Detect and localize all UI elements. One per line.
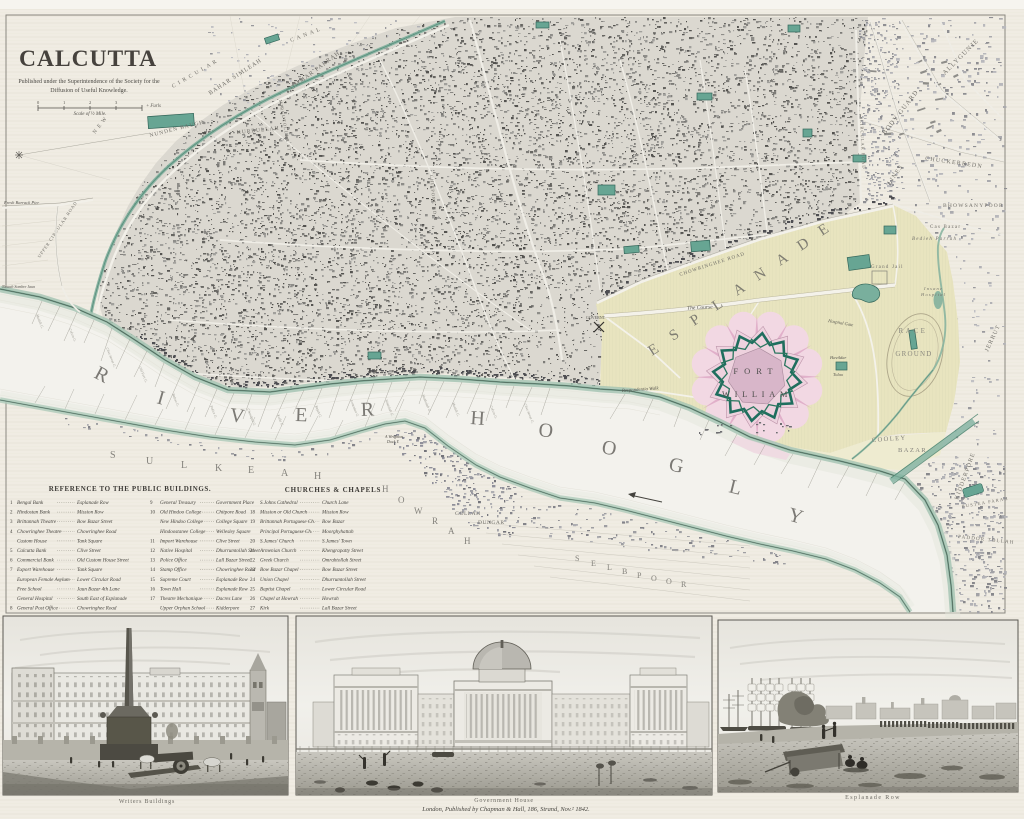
svg-text:15: 15 [150,578,156,583]
svg-text:Grand Jail: Grand Jail [871,265,904,270]
svg-text:Calcutta Bank: Calcutta Bank [17,548,47,554]
svg-text:O: O [398,495,405,505]
svg-text:Lower Circular Road: Lower Circular Road [321,586,366,592]
svg-text:Dhurrumtollah Street: Dhurrumtollah Street [321,577,366,583]
svg-text:Hospital: Hospital [920,292,946,297]
svg-text:BAZAR: BAZAR [898,447,927,454]
svg-text:L: L [181,460,187,471]
svg-text:London, Published by Chapman &: London, Published by Chapman & Hall, 186… [421,806,590,813]
svg-text:Published under the Superinten: Published under the Superintendence of t… [18,78,160,85]
svg-text:24: 24 [250,578,256,583]
svg-text:Brittannah Theatre: Brittannah Theatre [17,519,57,525]
svg-text:Bow Bazar Street: Bow Bazar Street [77,519,113,525]
svg-text:Tank Square: Tank Square [77,567,103,573]
svg-text:Union Chapel: Union Chapel [260,577,289,583]
svg-text:W: W [414,506,423,516]
svg-text:O: O [651,574,657,583]
svg-text:13: 13 [150,559,156,564]
svg-text:Bow Bazar Chapel: Bow Bazar Chapel [260,567,299,573]
svg-text:Old Custom House Street: Old Custom House Street [77,558,129,564]
svg-text:Upper Orphan School: Upper Orphan School [160,606,206,612]
svg-text:Chowringhee Theatre: Chowringhee Theatre [17,529,62,535]
svg-text:South East of Esplanade: South East of Esplanade [77,595,128,602]
svg-text:S.Johns Cathedral: S.Johns Cathedral [260,500,298,506]
svg-text:Lower Circular Road: Lower Circular Road [76,577,121,583]
svg-text:A: A [281,468,289,479]
svg-text:Chapel at Howrah: Chapel at Howrah [260,596,298,602]
svg-text:S.James' Town: S.James' Town [322,538,352,544]
svg-text:Esplanade Row: Esplanade Row [215,586,248,592]
svg-text:H: H [470,407,486,430]
svg-text:Mission Row: Mission Row [321,510,349,516]
svg-text:Clive Street: Clive Street [77,548,101,554]
svg-text:27: 27 [250,607,256,612]
svg-text:Cas Bazar: Cas Bazar [930,225,961,230]
svg-text:B: B [622,567,627,576]
svg-text:Chowringhee Road: Chowringhee Road [77,529,117,535]
svg-text:H: H [382,484,389,494]
svg-text:22: 22 [250,559,256,564]
svg-text:Dacres Lane: Dacres Lane [215,596,243,602]
svg-text:25: 25 [250,587,256,592]
svg-text:K: K [215,463,223,474]
svg-text:O: O [666,577,672,586]
svg-text:Hindostan Bank: Hindostan Bank [16,510,51,516]
svg-text:+ Furls: + Furls [146,104,161,109]
svg-text:P: P [637,571,642,580]
svg-text:14: 14 [150,568,156,573]
svg-text:S.James' Church: S.James' Church [260,538,294,544]
svg-text:11: 11 [150,539,155,544]
svg-text:S: S [575,554,579,563]
svg-text:Police Office: Police Office [159,557,187,564]
svg-text:WILLIAM: WILLIAM [722,389,792,399]
svg-text:Church Lane: Church Lane [322,500,349,506]
svg-text:Bow Bazar: Bow Bazar [322,519,345,525]
svg-text:College Square: College Square [216,519,248,525]
svg-text:Fresh Barrack Pier: Fresh Barrack Pier [3,200,39,205]
svg-text:12: 12 [150,549,156,554]
svg-text:A: A [448,526,455,536]
svg-text:2: 2 [89,100,91,105]
svg-text:Greek Church: Greek Church [260,558,289,564]
svg-text:New Hindoo College: New Hindoo College [159,519,203,525]
svg-text:E: E [248,465,254,476]
svg-text:Howrah: Howrah [321,596,339,602]
svg-text:Government House: Government House [474,798,534,804]
svg-text:Export Warehouse: Export Warehouse [16,567,55,573]
svg-text:Armenian Church: Armenian Church [259,548,297,554]
svg-text:Mission or Old Church: Mission or Old Church [259,510,308,516]
svg-text:Writers Buildings: Writers Buildings [119,799,175,805]
svg-text:Import Warehouse: Import Warehouse [159,538,198,544]
svg-text:16: 16 [150,587,156,592]
svg-text:U: U [146,456,154,467]
svg-text:Bedieh Parrah: Bedieh Parrah [912,237,957,242]
svg-text:10: 10 [150,511,156,516]
svg-text:GROUND: GROUND [895,350,932,358]
svg-text:Omrahtollah Street: Omrahtollah Street [322,558,362,564]
svg-text:R: R [360,399,375,421]
svg-text:CHURCHES & CHAPELS: CHURCHES & CHAPELS [285,486,381,494]
svg-text:Brittannah Portuguese Ch.: Brittannah Portuguese Ch. [260,519,315,525]
svg-text:E: E [295,404,308,426]
svg-text:BHOWSANYPOOR: BHOWSANYPOOR [943,203,1004,209]
svg-text:Commercial Bank: Commercial Bank [17,558,54,564]
svg-text:Moorghyhattah: Moorghyhattah [321,529,354,535]
svg-text:Scale of ½ Mile.: Scale of ½ Mile. [74,112,107,117]
svg-text:21: 21 [250,549,256,554]
svg-text:Baptist Chapel: Baptist Chapel [260,586,291,592]
svg-text:Wellesley Square: Wellesley Square [216,529,251,535]
svg-text:Bow Bazar Street: Bow Bazar Street [322,567,358,573]
svg-text:Mission Row: Mission Row [76,510,104,516]
svg-text:Supreme Court: Supreme Court [160,577,191,583]
svg-text:General Treasury: General Treasury [160,500,197,506]
svg-text:Old Hindoo College: Old Hindoo College [160,510,202,516]
svg-text:DUNGAR: DUNGAR [478,520,505,526]
svg-text:Principal Portuguese Ch.: Principal Portuguese Ch. [259,529,312,535]
svg-text:Stamp Office: Stamp Office [160,566,187,573]
svg-text:Chitpore Road: Chitpore Road [216,510,246,516]
svg-text:Diffusion of Useful Knowledge.: Diffusion of Useful Knowledge. [50,87,128,94]
svg-text:Kirk: Kirk [259,606,270,612]
svg-text:Insane: Insane [923,286,943,291]
svg-text:GOVERNT: GOVERNT [586,315,606,320]
svg-text:FORT: FORT [733,366,778,376]
svg-text:Dock Y.: Dock Y. [386,439,399,444]
svg-text:Theatre Mechanique: Theatre Mechanique [160,596,203,602]
svg-text:RACE: RACE [898,327,927,335]
svg-text:26: 26 [250,597,256,602]
svg-text:Nawab Sombre Jaun: Nawab Sombre Jaun [1,284,35,289]
svg-text:Tank Square: Tank Square [77,538,103,544]
svg-text:L: L [607,563,612,572]
svg-text:H: H [464,536,471,546]
svg-text:Esplanade Row: Esplanade Row [76,500,109,506]
svg-text:Free School: Free School [16,586,42,592]
svg-text:Tolao: Tolao [833,372,844,377]
svg-text:REFERENCE TO THE PUBLIC BUILDI: REFERENCE TO THE PUBLIC BUILDINGS. [49,485,212,493]
svg-text:H: H [314,471,321,482]
svg-text:E: E [591,559,596,568]
svg-text:GOLLAH: GOLLAH [455,511,481,517]
svg-text:Esplanade Row: Esplanade Row [215,577,248,583]
svg-text:Kidderpore: Kidderpore [215,606,240,612]
svg-text:Bengal Bank: Bengal Bank [17,500,44,506]
svg-text:R: R [681,580,687,589]
svg-text:Custom House: Custom House [17,538,48,544]
svg-text:Government Place: Government Place [216,500,255,506]
svg-text:CALCUTTA: CALCUTTA [19,46,157,72]
svg-text:Hindoostanee College: Hindoostanee College [159,529,206,535]
svg-text:1: 1 [63,100,65,105]
svg-text:Khengrapatty Street: Khengrapatty Street [321,548,364,554]
svg-text:Native Hospital: Native Hospital [159,548,193,554]
svg-text:Town Hall: Town Hall [160,586,182,592]
svg-text:Clive Street: Clive Street [216,538,240,544]
svg-text:18: 18 [250,511,256,516]
svg-text:23: 23 [250,568,256,573]
svg-text:Lall Bazar Street: Lall Bazar Street [321,606,357,612]
svg-text:Lall Bazar Street: Lall Bazar Street [215,558,251,564]
svg-text:Jaun Bazar 4th Lane: Jaun Bazar 4th Lane [77,586,120,592]
svg-text:20: 20 [250,539,256,544]
svg-text:17: 17 [150,597,156,602]
svg-text:Chowringhee Road: Chowringhee Road [77,606,117,612]
svg-text:Havildar: Havildar [829,355,846,360]
svg-text:19: 19 [250,520,256,525]
svg-text:S: S [110,450,116,461]
svg-text:Esplanade Row: Esplanade Row [845,795,901,801]
svg-text:R: R [432,516,438,526]
svg-text:O: O [537,419,554,442]
svg-text:General Post Office: General Post Office [17,605,58,612]
svg-text:General Hospital: General Hospital [17,596,53,602]
svg-text:European Female Asylum: European Female Asylum [16,577,70,583]
